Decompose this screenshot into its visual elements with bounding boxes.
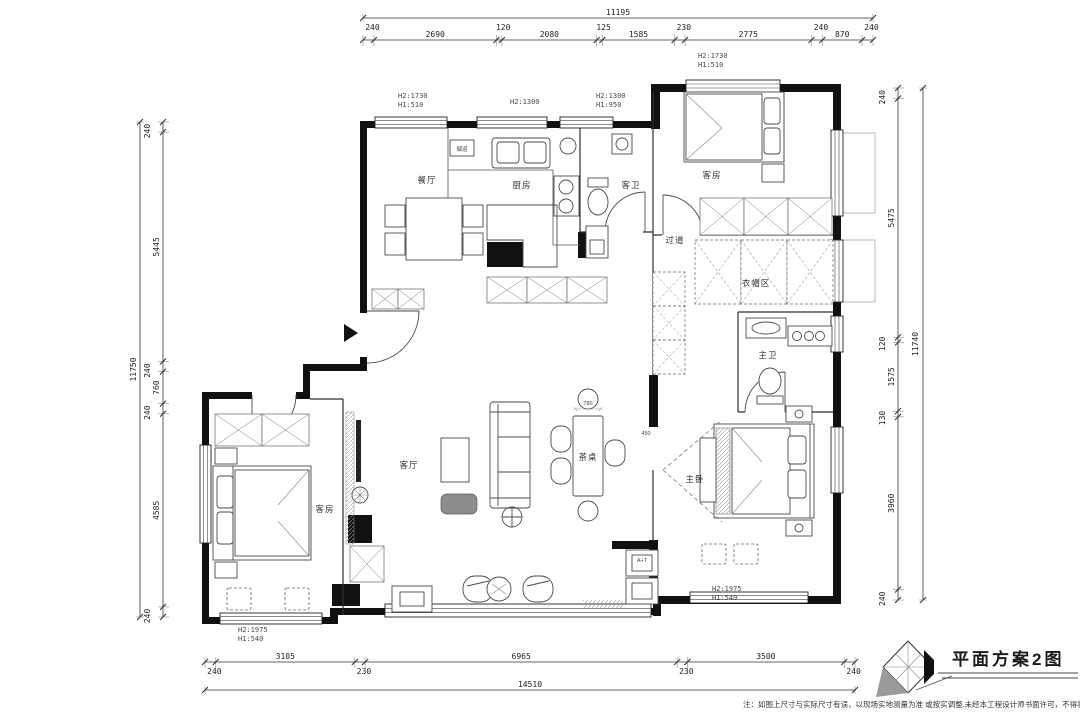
label-cabinet-depth: 450	[641, 431, 650, 437]
window-tag-h2: H2:1730	[398, 92, 428, 100]
window-tag-5: H2:1975H1:540	[238, 626, 268, 645]
window-tag-h1: H1:950	[596, 101, 621, 109]
label-kitchen: 厨房	[512, 180, 531, 190]
svg-text:240: 240	[864, 23, 879, 32]
window-tag-h2: H2:1975	[238, 626, 268, 634]
bed-guest-room-bottom	[213, 448, 311, 578]
floorplan-page: 餐厅 厨房 客卫 客房 过道 衣帽区 主卫 主卧 客厅 客房 茶桌 780 45…	[0, 0, 1080, 714]
svg-text:4585: 4585	[152, 500, 161, 519]
svg-text:240: 240	[878, 591, 887, 606]
svg-text:2690: 2690	[426, 30, 445, 39]
svg-text:3500: 3500	[756, 652, 775, 661]
window-tag-2: H2:1300	[510, 98, 540, 107]
svg-text:240: 240	[143, 609, 152, 624]
window-tag-h1: H1:540	[712, 594, 737, 602]
dimension-chain-right: 24054751201575130396024011740	[878, 85, 927, 606]
interior-walls	[310, 92, 875, 615]
window-tag-6: H2:1975H1:540	[712, 585, 742, 604]
svg-text:240: 240	[878, 90, 887, 105]
guest-bath-fixtures	[588, 134, 632, 215]
dimension-chain-top: 2402690120208012515852302775240870240111…	[360, 8, 879, 46]
floorplan-drawing: 餐厅 厨房 客卫 客房 过道 衣帽区 主卫 主卧 客厅 客房 茶桌 780 45…	[0, 0, 1080, 714]
label-cloak-area: 衣帽区	[742, 278, 771, 288]
label-tea-table: 茶桌	[578, 452, 597, 462]
svg-text:230: 230	[357, 667, 372, 676]
svg-text:240: 240	[143, 124, 152, 139]
svg-text:240: 240	[207, 667, 222, 676]
label-entry-cabinet: A+T	[637, 558, 648, 564]
svg-text:14510: 14510	[518, 680, 542, 689]
svg-text:760: 760	[152, 380, 161, 395]
svg-text:125: 125	[596, 23, 611, 32]
label-living: 客厅	[399, 460, 418, 470]
window-tag-h2: H2:1730	[698, 52, 728, 60]
label-hallway: 过道	[665, 235, 684, 245]
svg-text:240: 240	[814, 23, 829, 32]
svg-text:1585: 1585	[629, 30, 648, 39]
logo-bar	[924, 650, 934, 684]
svg-text:5475: 5475	[887, 208, 896, 227]
window-tag-h2: H2:1300	[596, 92, 626, 100]
drawing-title: 平面方案2图	[952, 645, 1064, 670]
label-master-bedroom: 主卧	[685, 474, 704, 484]
svg-text:230: 230	[677, 23, 692, 32]
label-guest-room-top: 客房	[702, 170, 721, 180]
svg-text:11195: 11195	[606, 8, 630, 17]
window-tag-h1: H1:510	[698, 61, 723, 69]
svg-text:230: 230	[679, 667, 694, 676]
label-guest-room-bottom: 客房	[315, 504, 334, 514]
window-tag-3: H2:1300H1:950	[596, 92, 626, 111]
svg-text:3960: 3960	[887, 493, 896, 512]
svg-text:240: 240	[365, 23, 380, 32]
master-bath-fixtures	[746, 318, 832, 404]
bed-master	[663, 406, 814, 536]
svg-text:120: 120	[496, 23, 511, 32]
window-tag-h2: H2:1975	[712, 585, 742, 593]
svg-text:870: 870	[835, 30, 850, 39]
svg-text:130: 130	[878, 411, 887, 426]
label-guest-bath: 客卫	[621, 180, 640, 190]
svg-text:240: 240	[143, 363, 152, 378]
label-master-bath: 主卫	[758, 350, 777, 360]
window-tag-h1: H1:540	[238, 635, 263, 643]
svg-text:1575: 1575	[887, 367, 896, 386]
svg-text:11740: 11740	[911, 332, 920, 356]
svg-text:240: 240	[143, 405, 152, 420]
svg-text:240: 240	[846, 667, 861, 676]
dimension-chain-left: 2405445240760240458524011750	[129, 119, 169, 623]
sofa	[441, 402, 530, 527]
svg-text:6965: 6965	[512, 652, 531, 661]
dimension-chain-bottom: 24031052306965230350024014510	[202, 652, 861, 694]
svg-text:5445: 5445	[152, 237, 161, 256]
label-dining: 餐厅	[417, 175, 436, 185]
drawing-note: 注：如图上尺寸与实际尺寸有误，以现场实地测量为准 或按实调整.未经本工程设计师书…	[743, 699, 1080, 710]
dining-table	[385, 198, 483, 260]
window-tag-1: H2:1730H1:510	[398, 92, 428, 111]
label-flue: 烟道	[456, 145, 468, 153]
bed-guest-room-top	[684, 92, 784, 182]
svg-text:120: 120	[878, 336, 887, 351]
window-tag-4: H2:1730H1:510	[698, 52, 728, 71]
svg-text:2080: 2080	[540, 30, 559, 39]
svg-text:11750: 11750	[129, 357, 138, 381]
label-tea-table-dim: 780	[583, 401, 592, 407]
svg-text:3105: 3105	[276, 652, 295, 661]
window-seating	[463, 576, 553, 602]
title-underline	[938, 673, 1078, 678]
window-tag-h2: H2:1300	[510, 98, 540, 106]
window-tag-h1: H1:510	[398, 101, 423, 109]
svg-text:2775: 2775	[739, 30, 758, 39]
entry-direction-marker	[344, 324, 358, 342]
